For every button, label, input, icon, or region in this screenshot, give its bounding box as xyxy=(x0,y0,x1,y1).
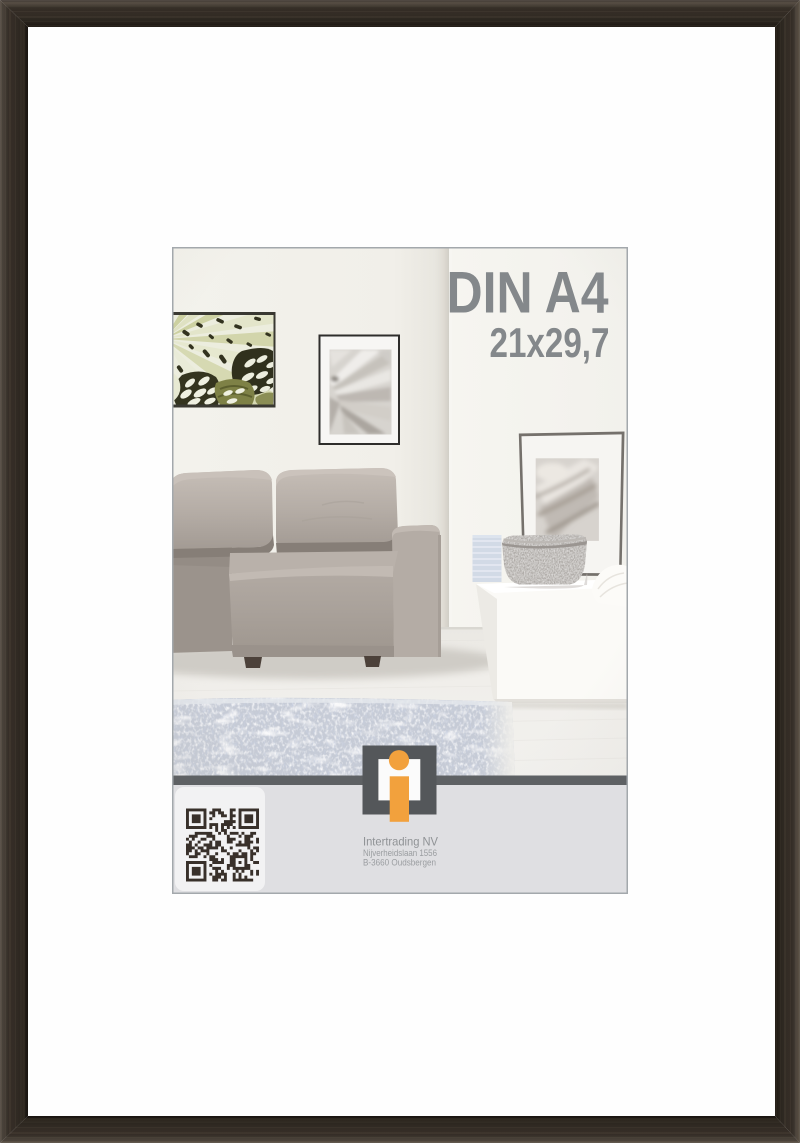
svg-text:B-3660 Oudsbergen: B-3660 Oudsbergen xyxy=(363,857,436,868)
